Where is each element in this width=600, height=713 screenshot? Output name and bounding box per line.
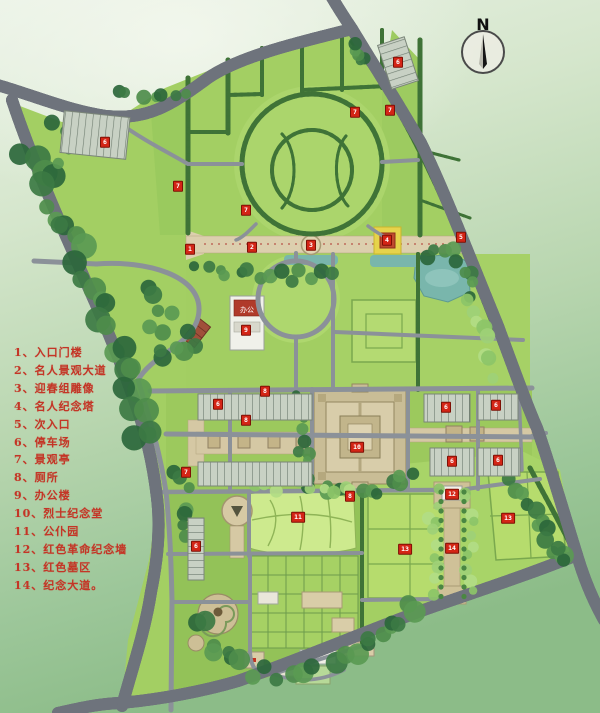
public-servant-garden [248, 490, 356, 554]
legend: 1、入口门楼 2、名人景观大道 3、迎春组雕像 4、名人纪念塔 5、次入口 6、… [14, 344, 164, 595]
legend-item-2: 2、名人景观大道 [14, 362, 164, 380]
legend-item-7: 7、景观亭 [14, 451, 164, 469]
legend-item-1: 1、入口门楼 [14, 344, 164, 362]
legend-item-3: 3、迎春组雕像 [14, 380, 164, 398]
legend-item-4: 4、名人纪念塔 [14, 398, 164, 416]
site-plan-page: 办公 [0, 0, 600, 713]
legend-item-13: 13、红色墓区 [14, 559, 164, 577]
legend-item-11: 11、公仆园 [14, 523, 164, 541]
legend-item-10: 10、烈士纪念堂 [14, 505, 164, 523]
legend-item-5: 5、次入口 [14, 416, 164, 434]
legend-item-9: 9、办公楼 [14, 487, 164, 505]
formal-garden [250, 556, 358, 648]
legend-item-6: 6、停车场 [14, 434, 164, 452]
legend-item-8: 8、厕所 [14, 469, 164, 487]
office-building-label: 办公 [240, 305, 254, 314]
legend-item-12: 12、红色革命纪念墙 [14, 541, 164, 559]
legend-item-14: 14、纪念大道。 [14, 577, 164, 595]
